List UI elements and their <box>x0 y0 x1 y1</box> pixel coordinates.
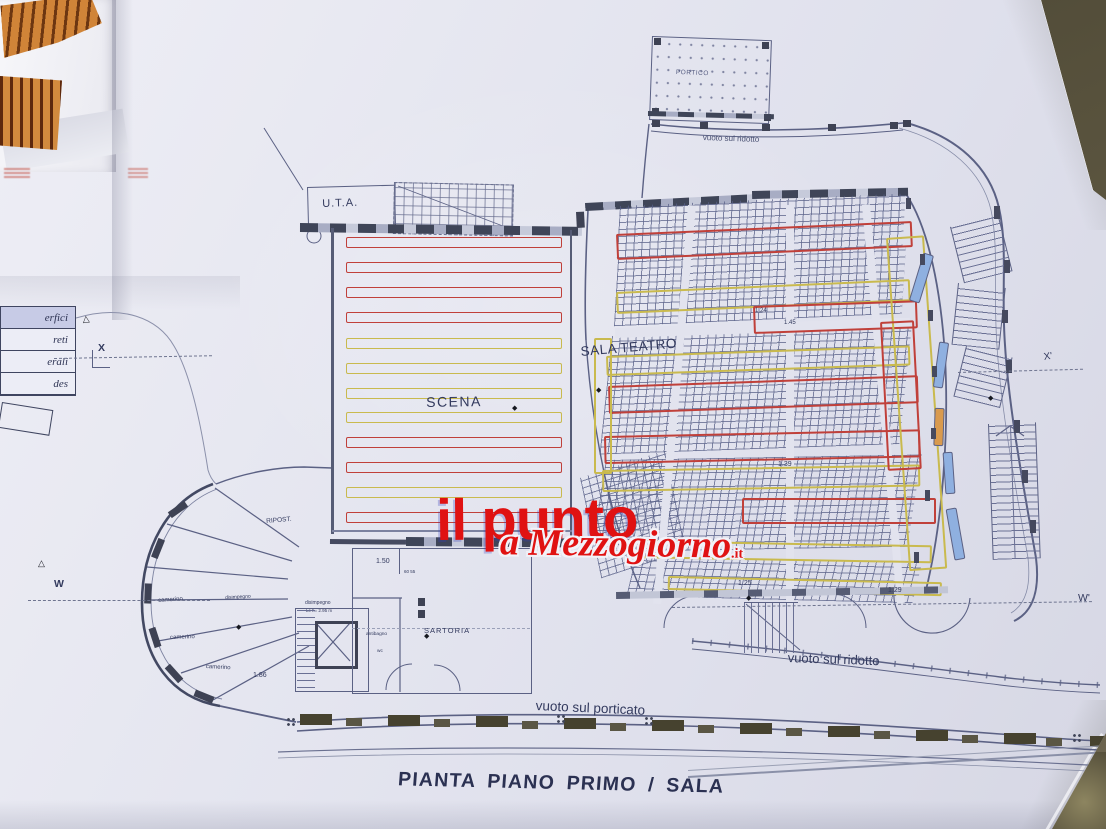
legend-text: des <box>53 378 68 390</box>
sartoria-room <box>352 548 532 694</box>
curved-stair-segment <box>952 283 1006 350</box>
column-dot-cluster <box>286 717 295 726</box>
dim-124: 1.24 <box>755 308 767 314</box>
scena-label: SCENA <box>426 393 482 410</box>
ridotto-top-wall-b <box>651 130 903 137</box>
camerino-label: camerino <box>170 634 195 641</box>
legend-row: reti <box>1 329 75 351</box>
stage-wagon-outline-red <box>346 437 562 448</box>
wc-label: wc <box>377 649 383 654</box>
portico-corner-piers <box>654 38 661 45</box>
photo-of-floor-plan: erfici reti erali des U.T.A. PORTICO vuo… <box>0 0 1106 829</box>
section-marker-x: X <box>98 342 105 354</box>
stage-wagon-outline-yellow <box>346 363 562 374</box>
uta-ramp-line <box>264 128 303 190</box>
stage-wagon-outline-red <box>346 287 562 298</box>
camerino-partition <box>147 567 288 579</box>
ridotto-top-wall-a <box>651 123 903 130</box>
column-dot-cluster <box>1072 733 1081 742</box>
dim-125: 1.25 <box>738 580 752 587</box>
dim-186: 1.86 <box>253 672 267 679</box>
antibagno-label: antibagno <box>366 632 387 637</box>
proscenium-pier <box>576 212 585 228</box>
section-corner-v <box>92 350 93 368</box>
dim-139: 1.39 <box>778 461 792 468</box>
colonnade-line-a <box>297 715 1100 741</box>
stage-wagon-outline-yellow <box>346 412 562 423</box>
cut-mark-icon: ◆ <box>424 632 429 640</box>
north-triangle-icon: △ <box>38 558 45 569</box>
watermark-secondary: a Mezzogiorno.it <box>500 520 744 567</box>
stage-left-wall <box>331 228 334 534</box>
section-marker-w-prime: W' <box>1078 592 1090 604</box>
portico-label: PORTICO <box>676 69 709 77</box>
hall-exit-stairs <box>744 602 798 653</box>
sartoria-pillar <box>418 610 425 618</box>
dim-150: 1.50 <box>376 558 390 565</box>
site-boundary-path <box>76 313 216 484</box>
seat-column-outline-yellow <box>594 338 612 474</box>
stage-wagon-outline-yellow <box>346 338 562 349</box>
north-triangle-icon: △ <box>82 313 90 325</box>
cut-mark-icon: ◆ <box>596 386 601 394</box>
dim-145: 1.45 <box>784 320 796 326</box>
section-marker-x-prime: X' <box>1043 351 1053 363</box>
column-dot-cluster <box>644 716 653 725</box>
ridotto-bottom-label: vuoto sul ridotto <box>787 650 879 668</box>
stage-wagon-outline-red <box>346 462 562 473</box>
camerino-label: camerino <box>206 664 231 671</box>
dim-6055: 60 55 <box>404 569 415 574</box>
ridotto-bottom-wall-b <box>692 649 1100 693</box>
disimpegno-label: disimpegno <box>305 600 331 606</box>
cut-mark-icon: ◆ <box>746 594 751 602</box>
section-line-w-left <box>28 600 210 601</box>
legend-table-fragment: erfici reti erali des <box>0 306 76 396</box>
stage-wagon-outline-red <box>346 262 562 273</box>
legend-text: erfici <box>45 312 68 324</box>
cut-mark-icon: ◆ <box>988 394 993 402</box>
legend-row: erfici <box>1 307 75 329</box>
ridotto-top-piers <box>652 120 660 127</box>
section-marker-w: W <box>54 578 64 590</box>
ground-line-a <box>278 748 1106 766</box>
sartoria-pillar <box>418 598 425 606</box>
door-swing <box>664 596 696 628</box>
hall-left-wall-upper <box>585 210 588 340</box>
drawing-sheet: erfici reti erali des U.T.A. PORTICO vuo… <box>0 0 1106 829</box>
watermark-secondary-text: a Mezzogiorno <box>500 521 732 566</box>
wing-upper-wall <box>216 467 332 484</box>
sartoria-top-wall <box>330 539 406 545</box>
colonnade-piers-large <box>300 714 332 725</box>
dim-129: 1.29 <box>888 587 902 594</box>
core-stair-rungs <box>297 610 315 688</box>
dim-150-line <box>399 548 400 574</box>
legend-text: reti <box>53 334 68 346</box>
legend-row: erali <box>1 351 75 373</box>
stage-wagon-outline-red <box>346 312 562 323</box>
legend-row: des <box>1 373 75 395</box>
column-dot-cluster <box>556 714 565 723</box>
radiator-bar-orange <box>933 408 944 446</box>
hall-wall-piers <box>906 198 911 209</box>
section-corner-h <box>92 367 110 368</box>
arc-to-colonnade <box>220 706 296 722</box>
watermark-suffix: .it <box>731 547 743 562</box>
cut-mark-icon: ◆ <box>512 404 517 412</box>
colonnade-piers-small <box>346 718 362 726</box>
ridotto-left-wall <box>642 124 649 198</box>
uta-label: U.T.A. <box>322 197 358 210</box>
stage-wagon-outline-red <box>346 237 562 248</box>
colonnade-line-b <box>297 724 1100 750</box>
camerino-partition <box>181 633 299 673</box>
cut-mark-icon: ◆ <box>236 623 241 631</box>
ridotto-top-label: vuoto sul ridotto <box>703 133 760 144</box>
sartoria-label: SARTORIA <box>424 626 470 635</box>
outer-wall-piers <box>994 206 1000 219</box>
